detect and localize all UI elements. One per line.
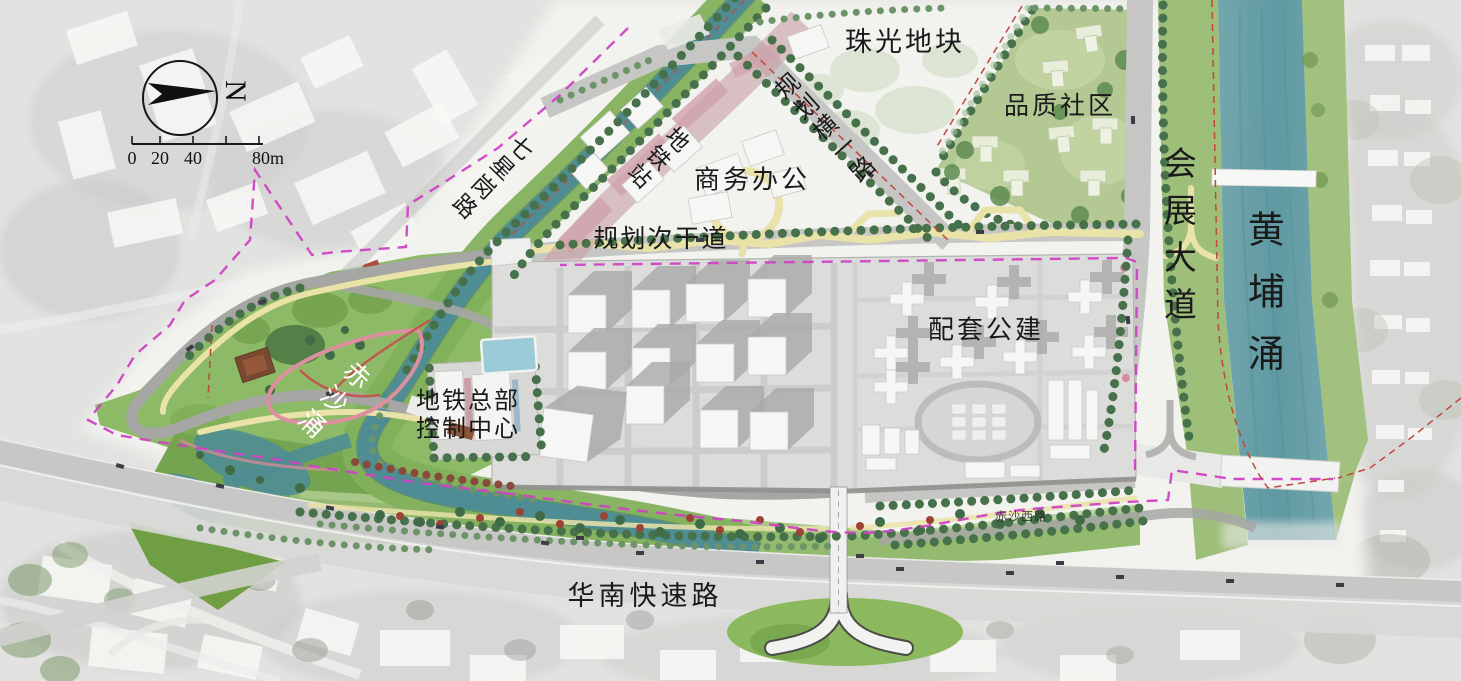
label-zhuguang-plot: 珠光地块 — [845, 28, 965, 56]
label-quality-community: 品质社区 — [1004, 94, 1116, 120]
scale-tick-40: 40 — [184, 148, 202, 169]
label-business-office: 商务办公 — [694, 166, 810, 193]
scale-bar: 0 20 40 80m — [124, 130, 294, 172]
scale-tick-0: 0 — [128, 148, 137, 169]
scale-tick-80m: 80m — [252, 148, 284, 169]
label-supporting-public: 配套公建 — [928, 316, 1044, 343]
label-metro-hq-line1: 地铁总部 — [416, 389, 520, 414]
label-chisha-west-road: 赤沙西路 — [995, 511, 1047, 524]
label-exhibition-avenue: 会展大道 — [1159, 146, 1194, 334]
label-huangpu-river: 黄埔涌 — [1242, 210, 1281, 396]
label-metro-hq-line2: 控制中心 — [416, 417, 520, 442]
swimming-pool — [481, 336, 537, 374]
label-south-china-expressway: 华南快速路 — [568, 582, 723, 610]
label-planned-secondary-road: 规划次干道 — [593, 227, 728, 253]
master-plan-map: 珠光地块 品质社区 规划横一路 地铁站 商务办公 规划次干道 七星岗路 会展大道… — [0, 0, 1461, 681]
scale-tick-20: 20 — [151, 148, 169, 169]
supporting-public-platform — [492, 254, 1136, 491]
north-label: N — [218, 80, 252, 102]
